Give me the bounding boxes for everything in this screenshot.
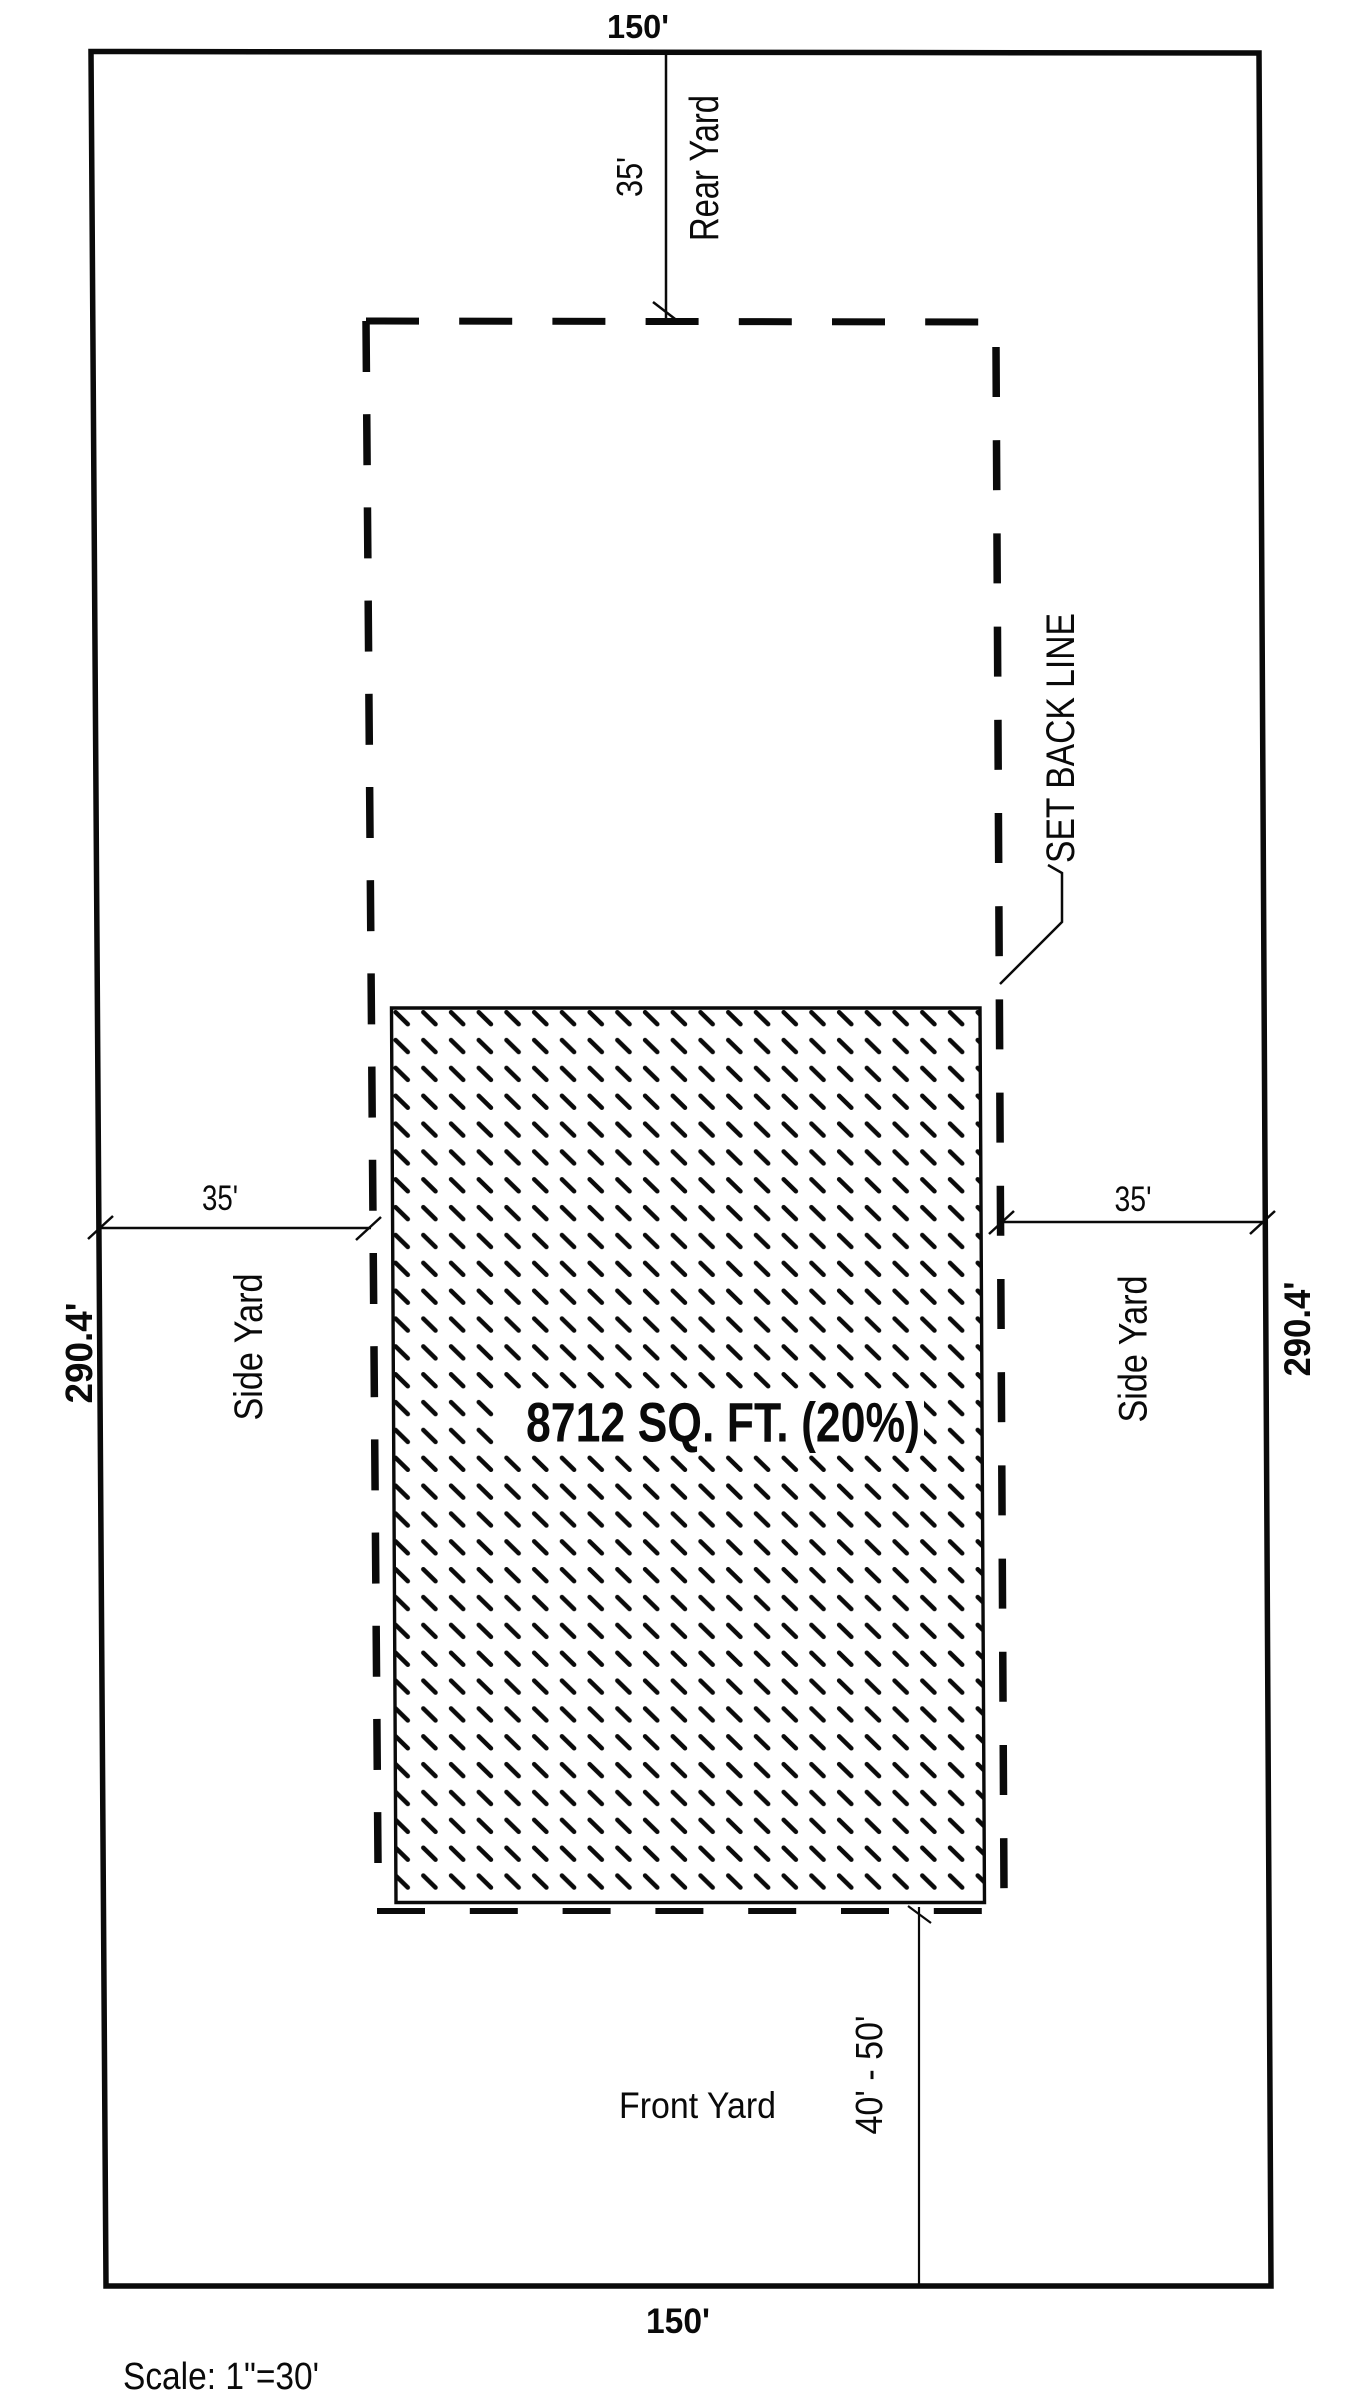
svg-text:150': 150' xyxy=(646,2302,710,2341)
svg-text:SET BACK LINE: SET BACK LINE xyxy=(1039,613,1083,863)
svg-text:Front Yard: Front Yard xyxy=(619,2085,776,2126)
svg-text:Rear Yard: Rear Yard xyxy=(681,95,727,241)
svg-text:35': 35' xyxy=(1115,1180,1152,1219)
svg-text:Scale: 1"=30': Scale: 1"=30' xyxy=(123,2356,319,2398)
svg-text:Side Yard: Side Yard xyxy=(1112,1276,1156,1423)
svg-text:35': 35' xyxy=(202,1179,238,1218)
svg-text:290.4': 290.4' xyxy=(59,1303,101,1404)
svg-text:35': 35' xyxy=(609,157,650,197)
svg-text:Side Yard: Side Yard xyxy=(227,1274,271,1421)
svg-text:290.4': 290.4' xyxy=(1277,1282,1318,1377)
svg-text:8712 SQ. FT. (20%): 8712 SQ. FT. (20%) xyxy=(526,1391,920,1454)
svg-text:150': 150' xyxy=(607,8,669,45)
svg-text:40' - 50': 40' - 50' xyxy=(849,2016,891,2135)
